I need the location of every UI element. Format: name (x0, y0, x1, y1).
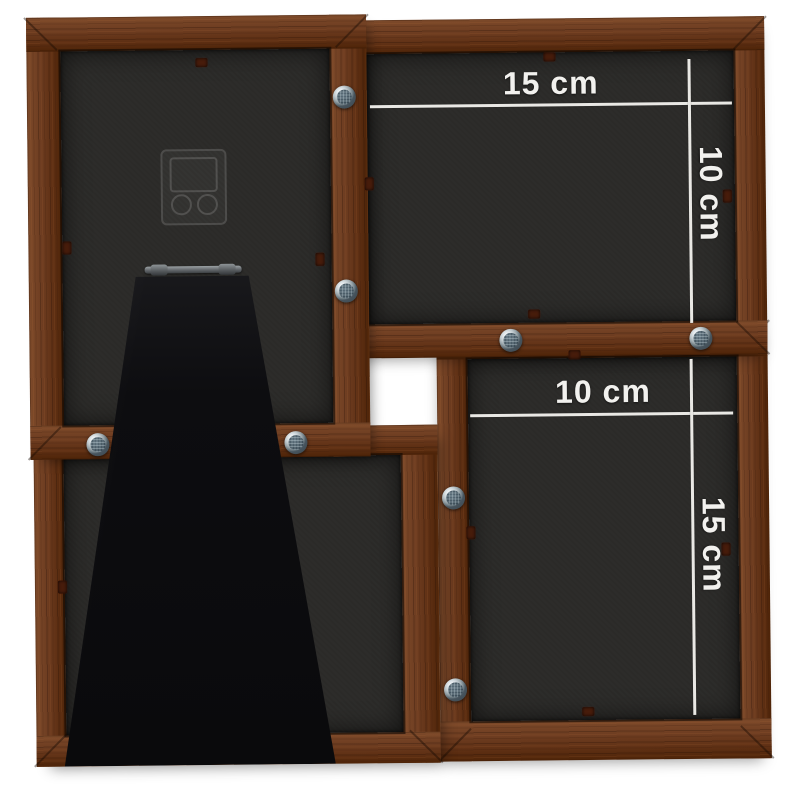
staple (315, 253, 324, 266)
frame-side-right (400, 425, 441, 763)
hanger-hole (171, 194, 192, 215)
wall-hanger-bracket (160, 149, 227, 226)
easel-hinge (145, 266, 242, 274)
staple (195, 58, 207, 67)
hanger-slot (169, 157, 217, 193)
width-dimension-label: 10 cm (555, 373, 651, 411)
hanger-hole (197, 194, 218, 215)
rosette-screw (333, 85, 356, 108)
staple (466, 526, 475, 539)
frame-side-right (329, 14, 371, 456)
staple (582, 707, 594, 716)
staple (62, 241, 71, 254)
staple (365, 177, 374, 190)
rosette-screw (689, 327, 712, 350)
frame-side-left (26, 18, 65, 460)
photo-canvas: 15 cm 10 cm 10 cm 15 cm (0, 0, 800, 800)
staple (528, 310, 540, 319)
frame-side-top (332, 16, 764, 55)
staple (568, 350, 580, 359)
rosette-screw (335, 279, 358, 302)
frame-side-top (26, 14, 366, 52)
width-dimension-label: 15 cm (503, 64, 599, 102)
rosette-screw (442, 486, 465, 509)
rosette-screw (86, 433, 109, 456)
frame-side-right (736, 320, 772, 758)
product-photo-frame-back: 15 cm 10 cm 10 cm 15 cm (0, 0, 800, 800)
height-dimension-label: 15 cm (695, 497, 733, 593)
rosette-screw (284, 431, 307, 454)
rosette-screw (499, 329, 522, 352)
staple (58, 580, 67, 593)
staple (543, 52, 555, 61)
frame-side-bottom (440, 718, 771, 761)
frame-side-left (33, 429, 67, 767)
height-dimension-label: 10 cm (692, 146, 730, 242)
rosette-screw (444, 678, 467, 701)
frame-side-right (733, 16, 768, 354)
